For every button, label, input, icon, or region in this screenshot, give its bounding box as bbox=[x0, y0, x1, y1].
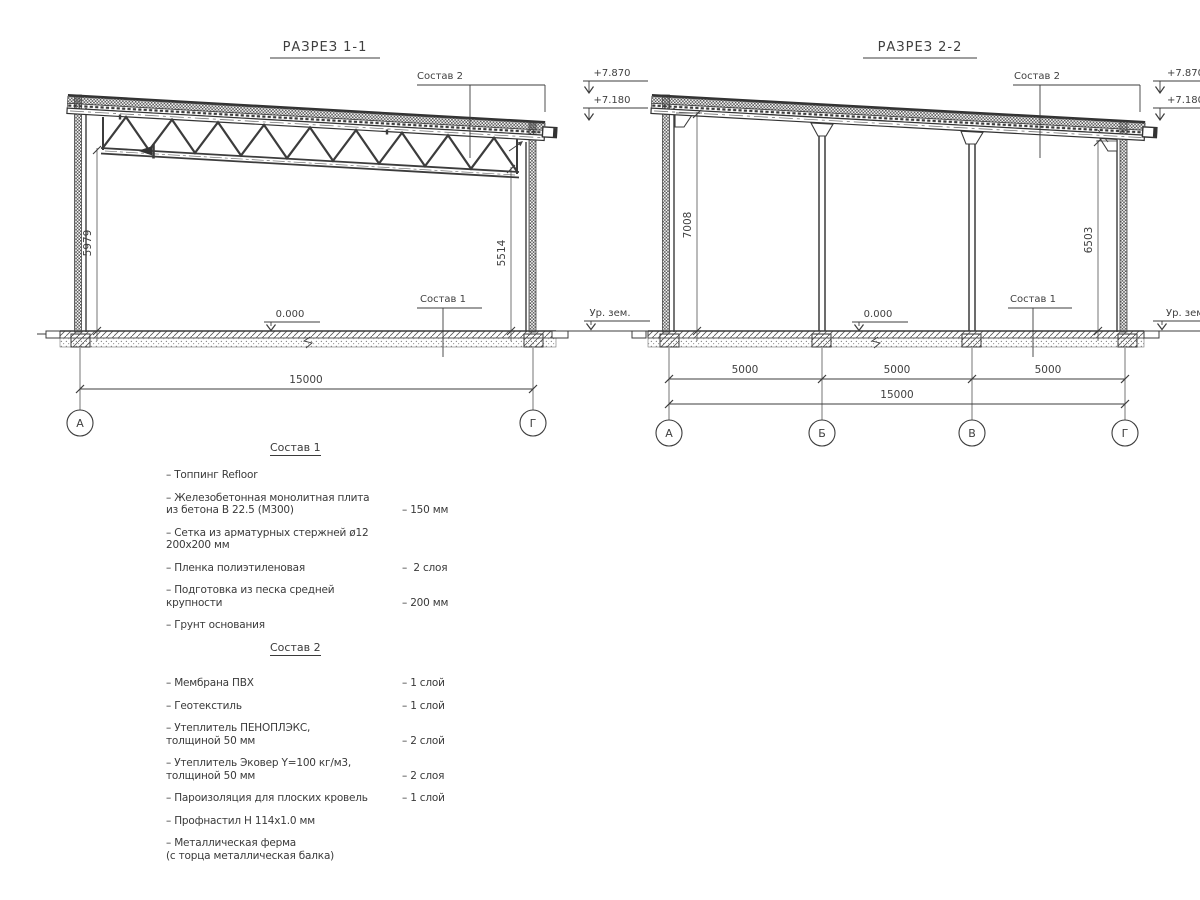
axis-bubble-B-2: Б bbox=[809, 420, 835, 446]
item-value: – 2 слоя bbox=[402, 562, 472, 575]
column-V bbox=[961, 131, 983, 331]
axis-letter: А bbox=[665, 427, 673, 440]
sostav1-title-text: Состав 1 bbox=[270, 441, 321, 456]
item-value: – 200 мм bbox=[402, 597, 472, 610]
axis-letter: Г bbox=[1122, 427, 1129, 440]
axis-bubble-G-1: Г bbox=[520, 410, 546, 436]
dim-span-text: 5000 bbox=[1035, 364, 1062, 376]
wall-left-2 bbox=[663, 95, 675, 332]
axis-bubble-A-1: А bbox=[67, 410, 93, 436]
item-label: – Геотекстиль bbox=[166, 700, 402, 713]
wall-right-1 bbox=[526, 122, 536, 332]
footing bbox=[524, 334, 543, 347]
list-item: – Сетка из арматурных стержней ø12 200х2… bbox=[166, 527, 472, 552]
sostav1-title: Состав 1 bbox=[166, 441, 472, 454]
footing bbox=[962, 334, 981, 347]
list-item: – Мембрана ПВХ – 1 слой bbox=[166, 677, 472, 690]
roof-package-1 bbox=[67, 94, 558, 141]
list-item: – Пленка полиэтиленовая – 2 слоя bbox=[166, 562, 472, 575]
sostav2-label-2: Состав 2 bbox=[1014, 71, 1060, 82]
item-value: – 1 слой bbox=[402, 792, 472, 805]
dim-7008: 7008 bbox=[676, 110, 702, 341]
axis-letter: Б bbox=[818, 427, 826, 440]
elev-mark-high-2: +7.870 bbox=[1153, 68, 1200, 93]
dim-5979: 5979 bbox=[82, 146, 101, 341]
footing-ledge bbox=[552, 331, 568, 338]
axis-bubble-V-2: В bbox=[959, 420, 985, 446]
item-label: – Пароизоляция для плоских кровель bbox=[166, 792, 402, 805]
zero-level-mark-2: 0.000 bbox=[852, 309, 908, 331]
item-label: – Утеплитель Эковер Y=100 кг/м3, толщино… bbox=[166, 757, 402, 782]
list-item: – Топпинг Refloor bbox=[166, 469, 472, 482]
item-label: – Сетка из арматурных стержней ø12 200х2… bbox=[166, 527, 402, 552]
list-item: – Профнастил Н 114х1.0 мм bbox=[166, 815, 472, 828]
ground-level-mark-2: Ур. зем. bbox=[1153, 308, 1200, 330]
list-item: – Подготовка из песка средней крупности … bbox=[166, 584, 472, 609]
sostav1-list: Состав 1 – Топпинг Refloor – Железобетон… bbox=[166, 441, 472, 642]
axis-bubble-G-2: Г bbox=[1112, 420, 1138, 446]
list-item: – Геотекстиль – 1 слой bbox=[166, 700, 472, 713]
zero-level-mark-1: 0.000 bbox=[264, 309, 320, 331]
section-1-1-title: РАЗРЕЗ 1-1 bbox=[283, 40, 368, 55]
footing bbox=[1118, 334, 1137, 347]
axis-letter: Г bbox=[530, 417, 537, 430]
section-1-1-drawing: РАЗРЕЗ 1-1 bbox=[37, 40, 650, 436]
sostav1-callout-2: Состав 1 bbox=[1008, 294, 1072, 357]
footing bbox=[660, 334, 679, 347]
elev-mark-low-2: +7.180 bbox=[1153, 95, 1200, 120]
item-label: – Топпинг Refloor bbox=[166, 469, 402, 482]
axis-letter: В bbox=[968, 427, 976, 440]
dim-span-text: 5000 bbox=[732, 364, 759, 376]
wall-capital-right bbox=[1100, 139, 1117, 152]
sostav1-items: – Топпинг Refloor – Железобетонная монол… bbox=[166, 469, 472, 632]
list-item: – Утеплитель ПЕНОПЛЭКС, толщиной 50 мм –… bbox=[166, 722, 472, 747]
elev-mark-high-1: +7.870 bbox=[583, 68, 648, 93]
zero-level-text-2: 0.000 bbox=[864, 309, 893, 320]
item-value: – 1 слой bbox=[402, 700, 472, 713]
dim-right-value-2: 6503 bbox=[1083, 227, 1095, 254]
sostav2-list: Состав 2 – Мембрана ПВХ – 1 слой – Геоте… bbox=[166, 641, 472, 872]
item-label: – Профнастил Н 114х1.0 мм bbox=[166, 815, 402, 828]
footing-ledge bbox=[1144, 331, 1159, 338]
ground-level-mark-1: Ур. зем. bbox=[584, 308, 650, 330]
list-item: – Металлическая ферма (с торца металличе… bbox=[166, 837, 472, 862]
sostav2-label-1: Состав 2 bbox=[417, 71, 463, 82]
item-label: – Железобетонная монолитная плита из бет… bbox=[166, 492, 402, 517]
sostav1-callout-1: Состав 1 bbox=[417, 294, 482, 357]
floor-slab-2 bbox=[632, 331, 1200, 348]
footing-ledge bbox=[46, 331, 60, 338]
sostav2-title-text: Состав 2 bbox=[270, 641, 321, 656]
list-item: – Пароизоляция для плоских кровель – 1 с… bbox=[166, 792, 472, 805]
wall-left-1 bbox=[75, 95, 87, 332]
item-label: – Подготовка из песка средней крупности bbox=[166, 584, 402, 609]
item-label: – Грунт основания bbox=[166, 619, 402, 632]
dim-span-text: 5000 bbox=[884, 364, 911, 376]
item-value: – 2 слой bbox=[402, 735, 472, 748]
elev-high-text-2: +7.870 bbox=[1167, 68, 1200, 79]
splice-arrow bbox=[138, 146, 152, 155]
list-item: – Утеплитель Эковер Y=100 кг/м3, толщино… bbox=[166, 757, 472, 782]
dim-rows-2: 5000 5000 5000 15000 bbox=[665, 348, 1129, 420]
dim-left-value-2: 7008 bbox=[682, 212, 694, 239]
wall-right-2 bbox=[1117, 122, 1127, 332]
axis-letter: А bbox=[76, 417, 84, 430]
sections-drawing: РАЗРЕЗ 1-1 bbox=[0, 0, 1200, 470]
dim-total-text-2: 15000 bbox=[880, 389, 913, 401]
floor-slab-1 bbox=[37, 331, 650, 348]
dim-total-text-1: 15000 bbox=[289, 374, 322, 386]
elev-low-text-2: +7.180 bbox=[1167, 95, 1200, 106]
item-value: – 150 мм bbox=[402, 504, 472, 517]
section-2-2-drawing: РАЗРЕЗ 2-2 bbox=[632, 40, 1200, 446]
footing bbox=[71, 334, 90, 347]
sostav2-items: – Мембрана ПВХ – 1 слой – Геотекстиль – … bbox=[166, 677, 472, 862]
item-label: – Пленка полиэтиленовая bbox=[166, 562, 402, 575]
dim-15000-1: 15000 bbox=[76, 348, 537, 410]
axis-bubble-A-2: А bbox=[656, 420, 682, 446]
dim-5514: 5514 bbox=[496, 165, 515, 341]
footing bbox=[812, 334, 831, 347]
elev-mark-low-1: +7.180 bbox=[583, 95, 648, 120]
ground-level-text-1: Ур. зем. bbox=[590, 308, 631, 319]
list-item: – Железобетонная монолитная плита из бет… bbox=[166, 492, 472, 517]
item-value: – 2 слоя bbox=[402, 770, 472, 783]
drawing-sheet: { "section1": { "title": "РАЗРЕЗ 1-1", "… bbox=[0, 0, 1200, 900]
roof-package-2 bbox=[651, 94, 1158, 141]
section-2-2-title: РАЗРЕЗ 2-2 bbox=[878, 40, 963, 55]
dim-right-value-1: 5514 bbox=[496, 239, 508, 266]
sostav1-label-2: Состав 1 bbox=[1010, 294, 1056, 305]
sostav1-label-1: Состав 1 bbox=[420, 294, 466, 305]
ground-level-text-2: Ур. зем. bbox=[1166, 308, 1200, 319]
elev-high-text-1: +7.870 bbox=[593, 68, 630, 79]
dim-left-value-1: 5979 bbox=[82, 230, 94, 257]
item-label: – Металлическая ферма (с торца металличе… bbox=[166, 837, 402, 862]
footing-ledge bbox=[632, 331, 646, 338]
list-item: – Грунт основания bbox=[166, 619, 472, 632]
sostav2-title: Состав 2 bbox=[166, 641, 472, 654]
item-value: – 1 слой bbox=[402, 677, 472, 690]
item-label: – Мембрана ПВХ bbox=[166, 677, 402, 690]
dim-6503: 6503 bbox=[1083, 138, 1118, 341]
elev-low-text-1: +7.180 bbox=[593, 95, 630, 106]
zero-level-text-1: 0.000 bbox=[276, 309, 305, 320]
item-label: – Утеплитель ПЕНОПЛЭКС, толщиной 50 мм bbox=[166, 722, 402, 747]
column-B bbox=[811, 123, 833, 331]
